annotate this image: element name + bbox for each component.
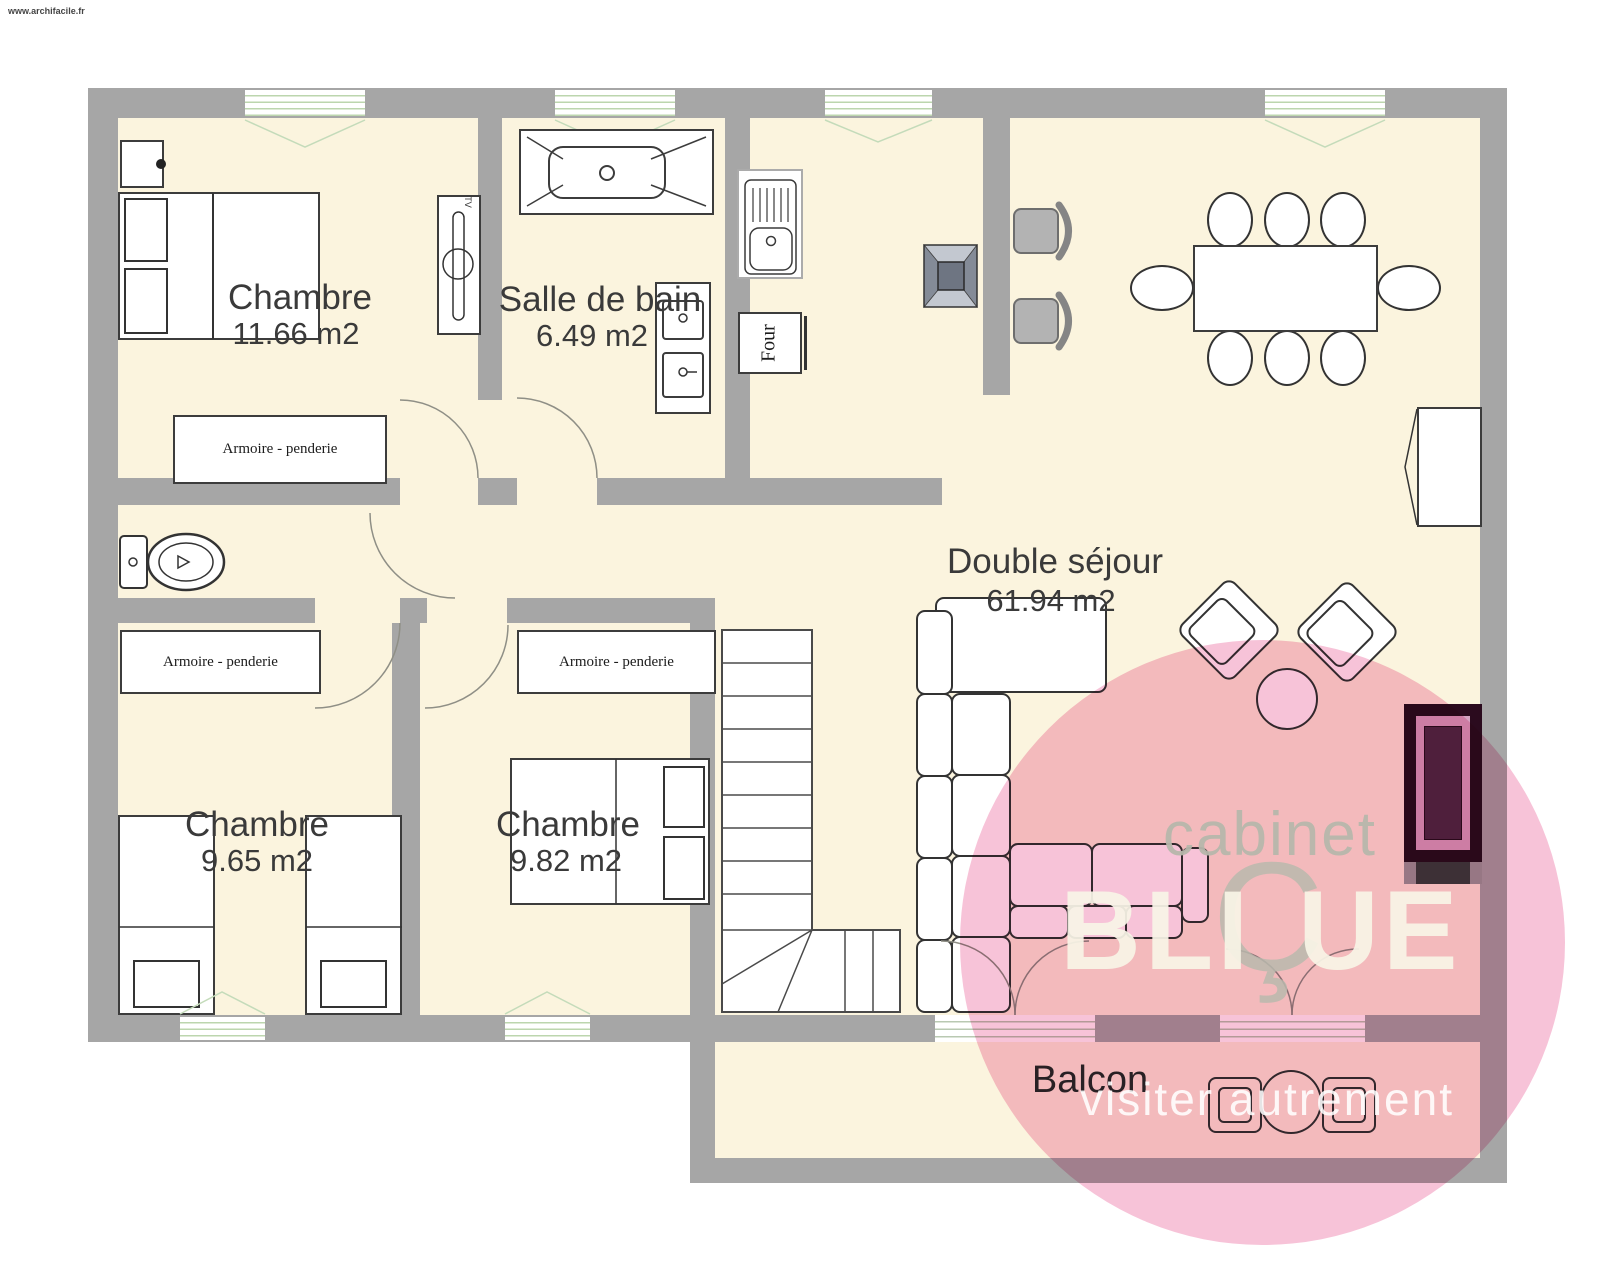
room-label-bedroom2: Chambre <box>185 805 329 845</box>
room-label-bathroom: Salle de bain <box>499 280 701 320</box>
room-area-bathroom: 6.49 m2 <box>536 318 648 354</box>
site-credit: www.archifacile.fr <box>8 6 85 16</box>
floor-plan: TV Armoire - penderie Four Armoire - pen… <box>0 0 1600 1278</box>
watermark-tagline: visiter autrement <box>1080 1072 1454 1126</box>
room-label-living: Double séjour <box>947 542 1163 582</box>
room-area-bedroom3: 9.82 m2 <box>510 843 622 879</box>
watermark-logo-right: UE <box>1298 866 1462 995</box>
room-area-bedroom1: 11.66 m2 <box>233 316 360 352</box>
room-label-bedroom1: Chambre <box>228 278 372 318</box>
room-label-bedroom3: Chambre <box>496 805 640 845</box>
room-area-living: 61.94 m2 <box>986 583 1115 619</box>
watermark-logo-left: BLI <box>1060 866 1252 995</box>
room-area-bedroom2: 9.65 m2 <box>201 843 313 879</box>
